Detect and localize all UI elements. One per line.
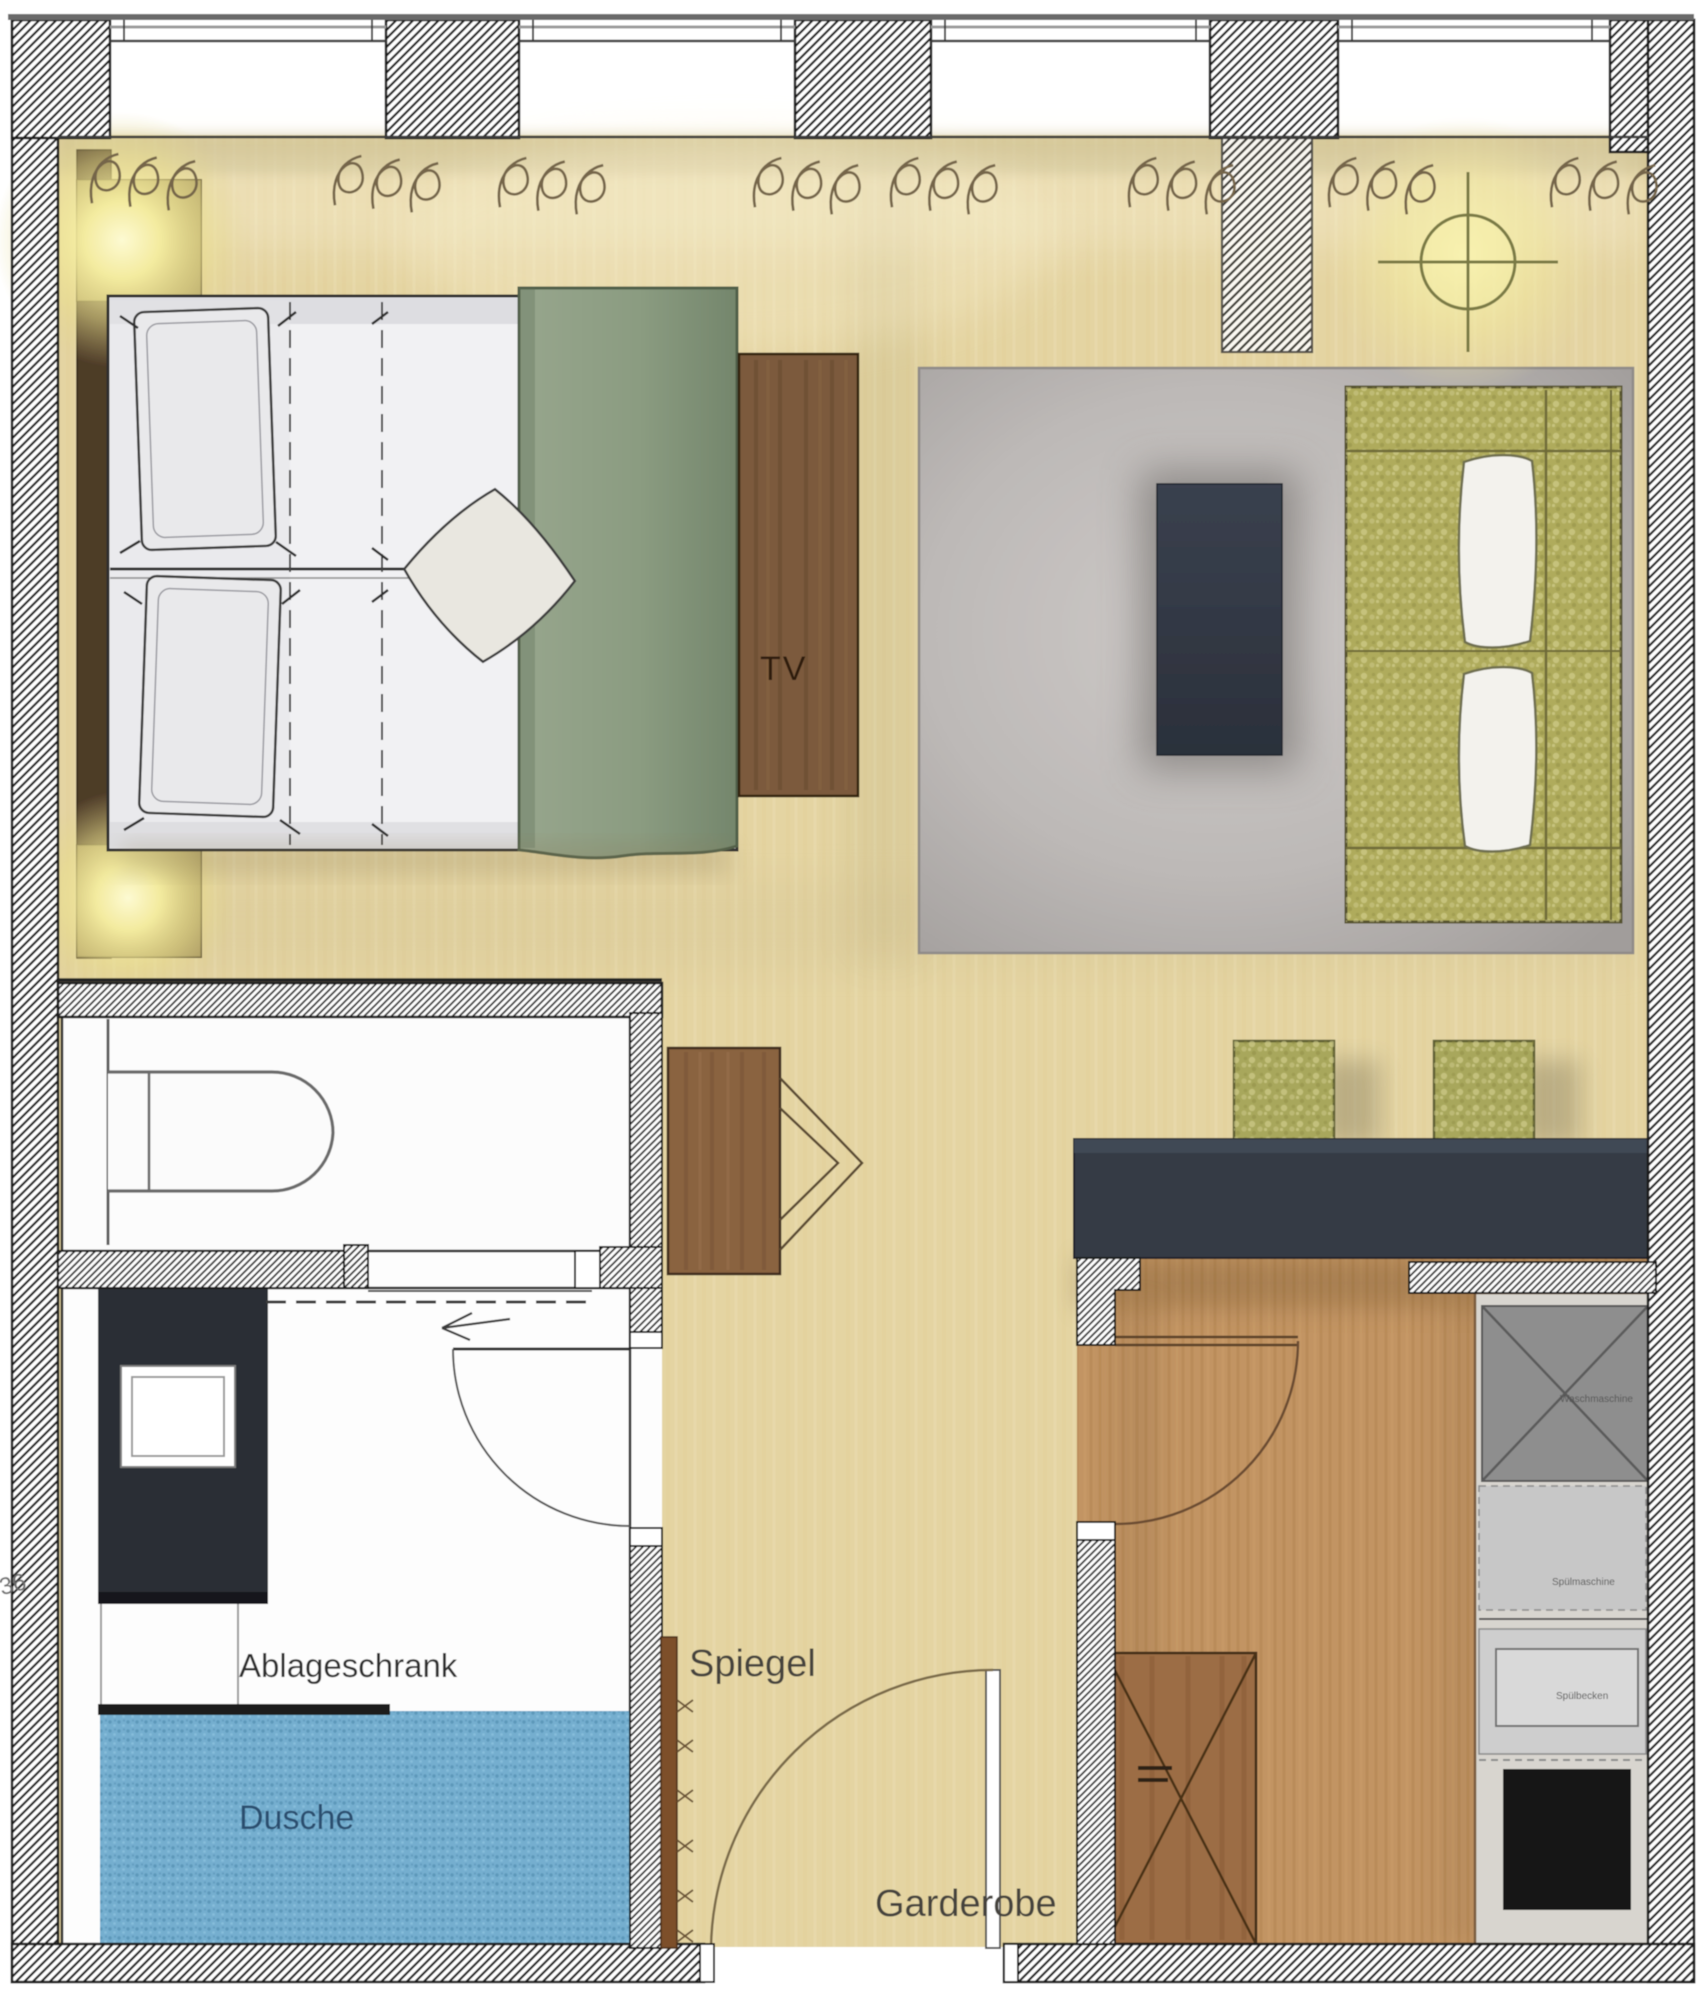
svg-text:Waschmaschine: Waschmaschine bbox=[1560, 1394, 1633, 1405]
svg-text:Spülbecken: Spülbecken bbox=[1556, 1691, 1608, 1702]
svg-text:Spiegel: Spiegel bbox=[689, 1643, 816, 1685]
svg-text:Garderobe: Garderobe bbox=[875, 1883, 1057, 1925]
svg-text:TV: TV bbox=[760, 650, 807, 688]
svg-text:Ablageschrank: Ablageschrank bbox=[239, 1647, 458, 1684]
svg-text:Dusche: Dusche bbox=[239, 1799, 354, 1837]
svg-text:Spülmaschine: Spülmaschine bbox=[1552, 1577, 1615, 1588]
